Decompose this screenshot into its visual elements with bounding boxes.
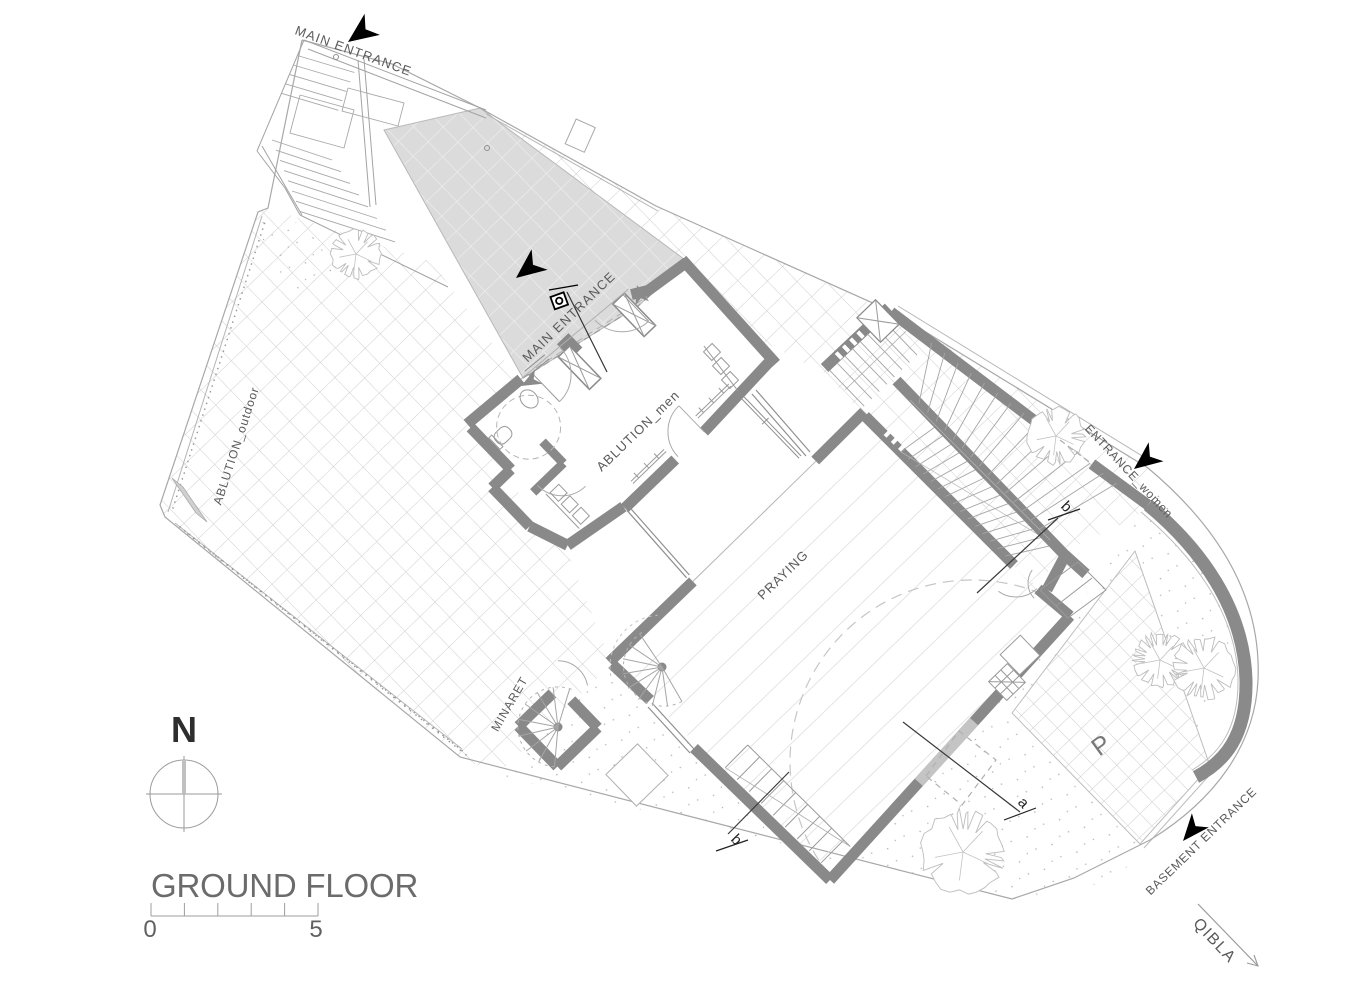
svg-text:GROUND FLOOR: GROUND FLOOR bbox=[151, 867, 418, 904]
svg-text:0: 0 bbox=[143, 916, 156, 943]
svg-text:N: N bbox=[171, 709, 197, 750]
svg-text:5: 5 bbox=[309, 916, 322, 943]
